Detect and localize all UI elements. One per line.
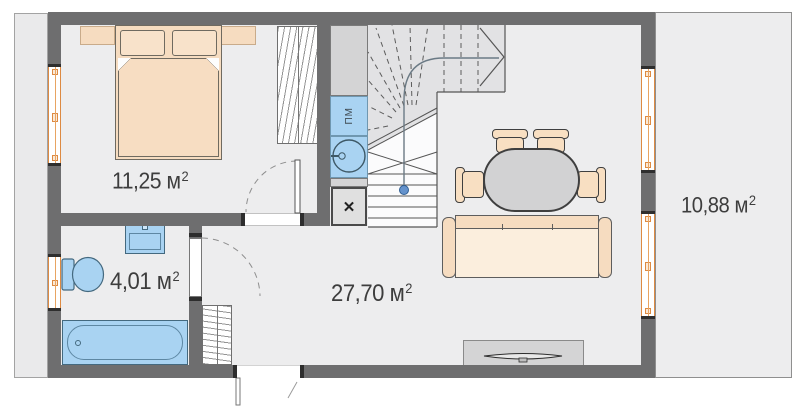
- exterior-strip-left: [14, 13, 48, 378]
- dishwasher-label: ПМ: [344, 107, 355, 125]
- window-living-lower: [641, 212, 655, 318]
- bathroom-sink: [125, 223, 165, 254]
- window-cap: [641, 66, 655, 69]
- bathtub-basin: [67, 325, 183, 360]
- area-sup: 2: [749, 192, 756, 208]
- window-cap: [641, 211, 655, 214]
- wall-right-seg: [641, 25, 655, 67]
- floor-plan: ПМ ✕: [0, 0, 800, 406]
- wardrobe: [277, 26, 318, 144]
- wall-top: [48, 12, 655, 25]
- window-cap: [641, 316, 655, 319]
- area-value: 27,70 м: [331, 280, 404, 307]
- window-frame-mark: [52, 155, 58, 161]
- counter-strip: [330, 178, 368, 187]
- sofa: [442, 215, 612, 278]
- appliance-symbol: ✕: [343, 198, 356, 216]
- area-value: 10,88 м: [681, 192, 748, 217]
- wall-bathroom-stub: [189, 226, 202, 238]
- window-cap: [641, 170, 655, 173]
- wall-bottom-left: [48, 365, 237, 378]
- area-label-terrace: 10,88 м2: [681, 191, 755, 218]
- window-bathroom: [48, 255, 61, 310]
- pillow-right: [172, 30, 217, 56]
- window-frame-mark: [52, 69, 58, 75]
- wall-left-seg: [48, 165, 61, 255]
- sink-basin: [129, 233, 161, 250]
- window-cap: [48, 163, 61, 166]
- area-label-living: 27,70 м2: [331, 279, 411, 308]
- window-cap: [48, 64, 61, 67]
- window-frame-mark: [645, 71, 651, 77]
- wall-bedroom-bottom: [48, 213, 245, 226]
- area-sup: 2: [182, 168, 189, 184]
- window-cap: [48, 308, 61, 311]
- kitchen-sink-cabinet: [330, 136, 368, 178]
- window-bedroom: [48, 65, 61, 165]
- sofa-armrest-left: [442, 217, 456, 278]
- appliance-box: ✕: [331, 187, 367, 226]
- dining-chair: [577, 171, 599, 198]
- dishwasher: ПМ: [330, 96, 368, 136]
- blanket-fold-left: [118, 58, 131, 71]
- window-handle: [52, 280, 58, 286]
- window-frame-mark: [645, 216, 651, 222]
- wall-right-seg: [641, 318, 655, 378]
- blanket-fold-right: [206, 58, 219, 71]
- wall-bathroom-lower: [189, 297, 202, 378]
- entrance-door-opening: [237, 365, 300, 378]
- window-frame-mark: [645, 162, 651, 168]
- wall-left-seg: [48, 310, 61, 365]
- hall-closet: [202, 305, 232, 365]
- bedroom-door-opening: [245, 213, 300, 226]
- window-living-upper: [641, 67, 655, 172]
- area-sup: 2: [172, 268, 179, 284]
- wall-bedroom-bottom-stub: [300, 213, 330, 226]
- sofa-seam: [552, 224, 553, 230]
- sofa-armrest-right: [598, 217, 612, 278]
- window-cap: [48, 254, 61, 257]
- window-handle: [645, 262, 651, 271]
- sofa-back: [455, 215, 599, 229]
- double-bed: [115, 25, 222, 160]
- wall-right-seg: [641, 172, 655, 212]
- wall-bottom-right: [300, 365, 655, 378]
- bathtub: [62, 320, 188, 365]
- sofa-seat: [455, 228, 599, 278]
- area-label-bedroom: 11,25 м2: [112, 167, 187, 195]
- dining-table: [483, 148, 580, 212]
- window-handle: [52, 113, 58, 122]
- nightstand-left: [80, 26, 115, 45]
- area-value: 11,25 м: [112, 168, 181, 194]
- window-frame-mark: [645, 308, 651, 314]
- area-label-bathroom: 4,01 м2: [110, 267, 178, 296]
- area-value: 4,01 м: [110, 268, 172, 295]
- nightstand-right: [221, 26, 256, 45]
- wall-left-seg: [48, 25, 61, 65]
- pillow-left: [120, 30, 165, 56]
- area-sup: 2: [405, 280, 412, 296]
- window-handle: [645, 116, 651, 125]
- bed-blanket: [118, 58, 219, 157]
- kitchen-counter: [330, 25, 368, 96]
- sofa-seam: [502, 224, 503, 230]
- tv-stand: [463, 340, 584, 366]
- bathtub-drain: [75, 340, 81, 346]
- wall-bedroom-vertical: [317, 25, 330, 226]
- dining-chair: [462, 171, 484, 198]
